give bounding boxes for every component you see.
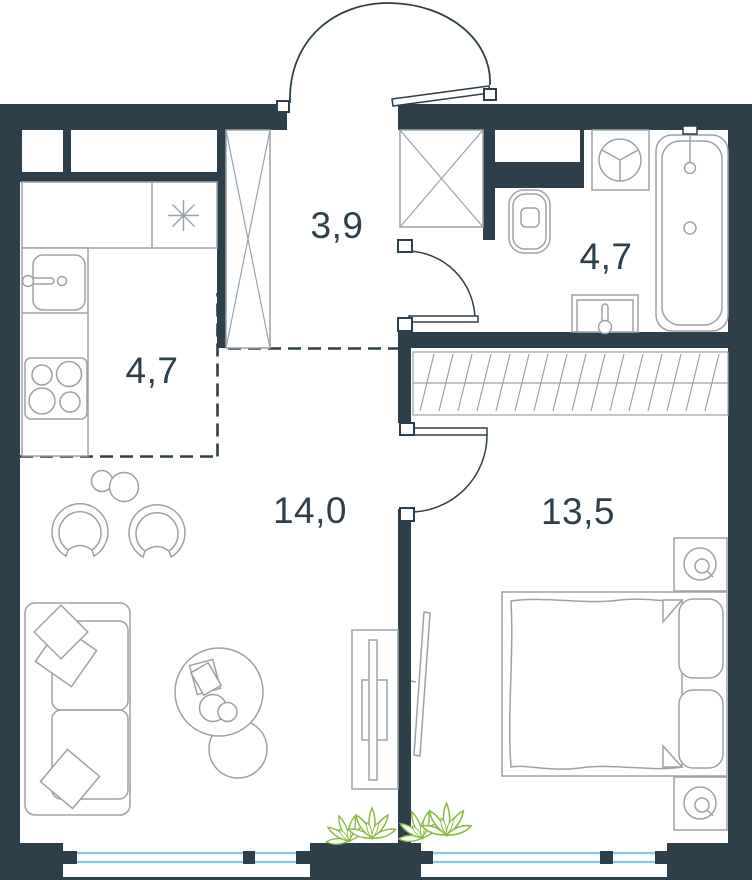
bathroom-faucet-base — [599, 321, 612, 334]
lamp-base — [695, 559, 709, 573]
wall-right — [728, 104, 752, 880]
bed — [502, 592, 727, 776]
wall-top-left — [0, 104, 287, 130]
door-jamb-cap — [398, 318, 412, 331]
coffee-table — [175, 648, 263, 736]
door-jamb-cap — [400, 508, 414, 521]
bed-pillow-bottom — [679, 690, 723, 768]
door-jamb-cap — [400, 423, 414, 435]
bathroom-duct-niche — [495, 130, 580, 162]
window-mullion — [243, 851, 255, 864]
bathtub-faucet-cap — [683, 126, 697, 134]
bathtub-drain — [684, 222, 696, 234]
kitchen-sink-drain — [58, 277, 67, 286]
bedroom-window-opening — [421, 843, 667, 877]
washing-machine — [592, 130, 649, 190]
kitchen-duct-wide — [71, 130, 217, 172]
bedroom-area-label: 13,5 — [541, 491, 615, 532]
bed-blanket — [510, 599, 682, 769]
sofa — [25, 603, 130, 815]
nightstand-top — [674, 538, 727, 591]
window-post — [655, 851, 667, 864]
floor-plan-canvas: 3,9 4,7 4,7 14,0 13,5 — [0, 0, 752, 880]
fridge-snowflake-icon — [168, 200, 199, 231]
kitchen-area-label: 4,7 — [126, 350, 179, 391]
cup-small — [218, 703, 237, 722]
bathroom-door-leaf — [409, 316, 478, 322]
wall-divider-upper — [398, 348, 411, 423]
living-area-label: 14,0 — [273, 490, 347, 531]
living-tv-stand — [352, 630, 398, 789]
toilet-flush — [521, 208, 539, 227]
door-jamb-cap — [398, 240, 412, 252]
hallway-area-label: 3,9 — [311, 205, 364, 246]
kitchen-faucet-base — [23, 276, 34, 287]
wall-bath-bottom — [398, 332, 752, 348]
wall-left — [0, 104, 20, 880]
bathroom-sink — [572, 295, 638, 334]
bedroom-door-leaf — [412, 428, 487, 435]
bathtub — [656, 131, 728, 331]
tv-wall-bracket — [411, 681, 416, 682]
hallway-wardrobe — [226, 130, 270, 348]
bathtub-faucet-head — [685, 163, 696, 174]
bed-pillow-top — [679, 599, 723, 678]
side-table-large — [110, 473, 139, 502]
window-mullion — [600, 851, 613, 864]
tv-screen — [369, 640, 377, 780]
door-jamb-cap — [277, 101, 289, 112]
door-jamb-cap — [484, 89, 496, 100]
window-post — [421, 851, 433, 864]
stove-burner — [32, 365, 52, 385]
kitchen-duct-small — [22, 130, 63, 172]
nightstand-bottom — [674, 777, 727, 830]
window-post — [296, 851, 310, 864]
wall-top-right — [398, 104, 752, 130]
toilet — [509, 190, 550, 253]
stove-burner — [60, 392, 80, 412]
living-window-opening — [63, 843, 310, 877]
wall-bath-vent — [483, 188, 495, 240]
window-post — [63, 851, 77, 864]
bathroom-area-label: 4,7 — [580, 236, 633, 277]
floor-plan: 3,9 4,7 4,7 14,0 13,5 — [0, 0, 752, 880]
vent-shaft — [400, 130, 483, 227]
stove-burner — [29, 388, 55, 414]
stove-burner — [57, 362, 82, 387]
wall-divider-lower — [398, 509, 411, 843]
lamp-base — [695, 798, 709, 812]
